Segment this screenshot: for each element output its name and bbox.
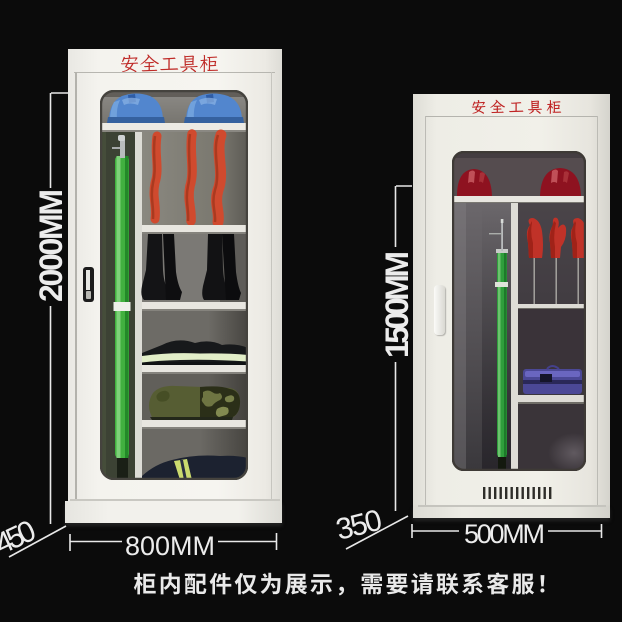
svg-text:800MM: 800MM bbox=[125, 531, 215, 561]
svg-text:350: 350 bbox=[333, 504, 386, 547]
svg-text:1500MM: 1500MM bbox=[379, 251, 415, 358]
svg-text:2000MM: 2000MM bbox=[33, 189, 69, 302]
svg-text:450: 450 bbox=[0, 514, 41, 561]
svg-text:500MM: 500MM bbox=[464, 519, 545, 549]
